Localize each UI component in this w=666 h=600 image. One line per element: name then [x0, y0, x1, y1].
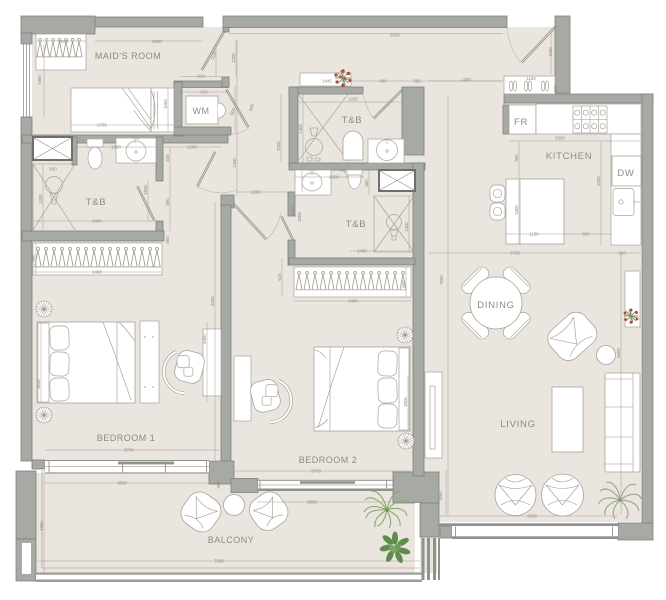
svg-text:1300: 1300 [38, 194, 43, 204]
svg-text:3700: 3700 [124, 448, 134, 453]
svg-text:6550: 6550 [390, 32, 400, 37]
svg-text:1300: 1300 [514, 205, 519, 215]
svg-text:615: 615 [277, 273, 282, 281]
svg-text:1450: 1450 [461, 77, 471, 82]
svg-text:1400: 1400 [298, 124, 303, 134]
svg-text:1000: 1000 [163, 99, 168, 109]
svg-text:BEDROOM 1: BEDROOM 1 [97, 433, 156, 443]
svg-text:LIVING: LIVING [500, 419, 535, 430]
svg-text:1600: 1600 [329, 175, 339, 180]
svg-text:910: 910 [197, 73, 205, 78]
svg-text:2000: 2000 [555, 136, 565, 141]
svg-text:KITCHEN: KITCHEN [546, 151, 593, 162]
svg-text:1000: 1000 [548, 47, 553, 57]
svg-text:7550: 7550 [439, 275, 444, 285]
svg-text:T&B: T&B [346, 219, 367, 230]
svg-text:500: 500 [364, 179, 369, 187]
svg-text:DW: DW [617, 168, 634, 179]
svg-text:2400: 2400 [348, 299, 358, 304]
svg-text:1800: 1800 [143, 185, 148, 195]
svg-text:400: 400 [553, 85, 558, 93]
svg-text:3500: 3500 [117, 481, 127, 486]
svg-text:3800: 3800 [307, 500, 317, 505]
svg-text:600: 600 [618, 251, 626, 256]
svg-text:T&B: T&B [342, 115, 363, 126]
svg-text:MAID'S ROOM: MAID'S ROOM [95, 51, 161, 61]
svg-text:600: 600 [401, 280, 406, 288]
svg-text:T&B: T&B [86, 197, 107, 208]
svg-text:1150: 1150 [529, 232, 539, 237]
svg-text:5400: 5400 [202, 334, 207, 344]
svg-text:1200: 1200 [58, 39, 68, 44]
svg-text:600: 600 [31, 254, 36, 262]
svg-text:1150: 1150 [526, 76, 536, 81]
svg-text:7300: 7300 [214, 559, 224, 564]
svg-text:1200: 1200 [251, 190, 261, 195]
svg-text:2400: 2400 [357, 249, 367, 254]
svg-text:1950: 1950 [39, 521, 44, 531]
svg-text:800: 800 [165, 198, 170, 206]
svg-text:1300: 1300 [404, 222, 409, 232]
svg-text:1050: 1050 [438, 491, 443, 501]
svg-text:3700: 3700 [510, 251, 520, 256]
svg-text:3800: 3800 [403, 397, 408, 407]
svg-text:2500: 2500 [152, 39, 162, 44]
svg-text:635: 635 [165, 154, 170, 162]
svg-text:2200: 2200 [596, 176, 601, 186]
svg-text:BALCONY: BALCONY [208, 535, 255, 545]
svg-text:1200: 1200 [231, 53, 236, 63]
svg-text:2200: 2200 [276, 141, 281, 151]
svg-text:5500: 5500 [616, 348, 621, 358]
svg-text:505: 505 [413, 79, 421, 84]
svg-text:BEDROOM 2: BEDROOM 2 [299, 455, 358, 465]
svg-text:WM: WM [193, 106, 210, 116]
svg-text:910: 910 [200, 89, 208, 94]
svg-text:1000: 1000 [297, 212, 302, 222]
svg-text:500: 500 [49, 167, 57, 172]
svg-text:1600: 1600 [111, 145, 121, 150]
svg-text:FR: FR [514, 117, 528, 128]
svg-text:2400: 2400 [92, 270, 102, 275]
svg-text:865: 865 [165, 236, 170, 244]
svg-text:2795: 2795 [97, 123, 107, 128]
svg-text:3950: 3950 [527, 514, 537, 519]
svg-text:900: 900 [514, 154, 519, 162]
svg-text:2400: 2400 [92, 219, 102, 224]
svg-text:900: 900 [582, 232, 590, 237]
svg-text:1950: 1950 [37, 75, 42, 85]
svg-text:1350: 1350 [232, 158, 237, 168]
svg-text:2250: 2250 [348, 97, 358, 102]
svg-text:1200: 1200 [187, 145, 197, 150]
svg-text:3850: 3850 [36, 379, 41, 389]
svg-text:350: 350 [216, 481, 221, 489]
svg-text:6350: 6350 [210, 296, 215, 306]
svg-text:3700: 3700 [311, 469, 321, 474]
svg-text:800: 800 [379, 79, 387, 84]
svg-text:1445: 1445 [322, 79, 332, 84]
svg-text:1800: 1800 [290, 205, 295, 215]
svg-text:DINING: DINING [477, 300, 514, 311]
